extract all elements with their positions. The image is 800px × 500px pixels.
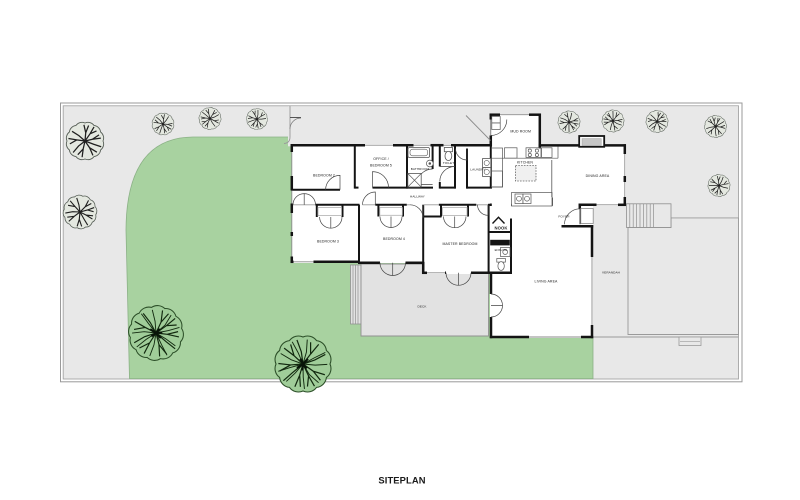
svg-text:ENSUITE: ENSUITE [495,248,508,252]
svg-text:MASTER BEDROOM: MASTER BEDROOM [442,242,477,246]
svg-text:DINING AREA: DINING AREA [586,174,610,178]
svg-text:BEDROOM 2: BEDROOM 2 [313,174,335,178]
svg-text:NOOK: NOOK [495,225,508,230]
svg-text:LAUNDRY: LAUNDRY [470,168,485,172]
svg-text:BATHROOM: BATHROOM [411,167,430,171]
svg-text:VERANDAH: VERANDAH [602,271,620,275]
svg-text:SITEPLAN: SITEPLAN [378,475,425,486]
svg-text:MUD ROOM: MUD ROOM [510,130,531,134]
svg-text:DECK: DECK [418,305,428,309]
svg-text:KITCHEN: KITCHEN [517,161,533,165]
svg-text:TOILET: TOILET [443,161,454,165]
svg-text:BEDROOM 3: BEDROOM 3 [317,240,339,244]
svg-text:FOYER: FOYER [558,215,570,219]
svg-text:BEDROOM 5: BEDROOM 5 [370,164,392,168]
svg-text:LIVING AREA: LIVING AREA [535,280,558,284]
svg-text:OFFICE /: OFFICE / [373,157,389,161]
svg-text:HALLWAY: HALLWAY [410,195,425,199]
svg-text:BEDROOM 4: BEDROOM 4 [383,237,405,241]
